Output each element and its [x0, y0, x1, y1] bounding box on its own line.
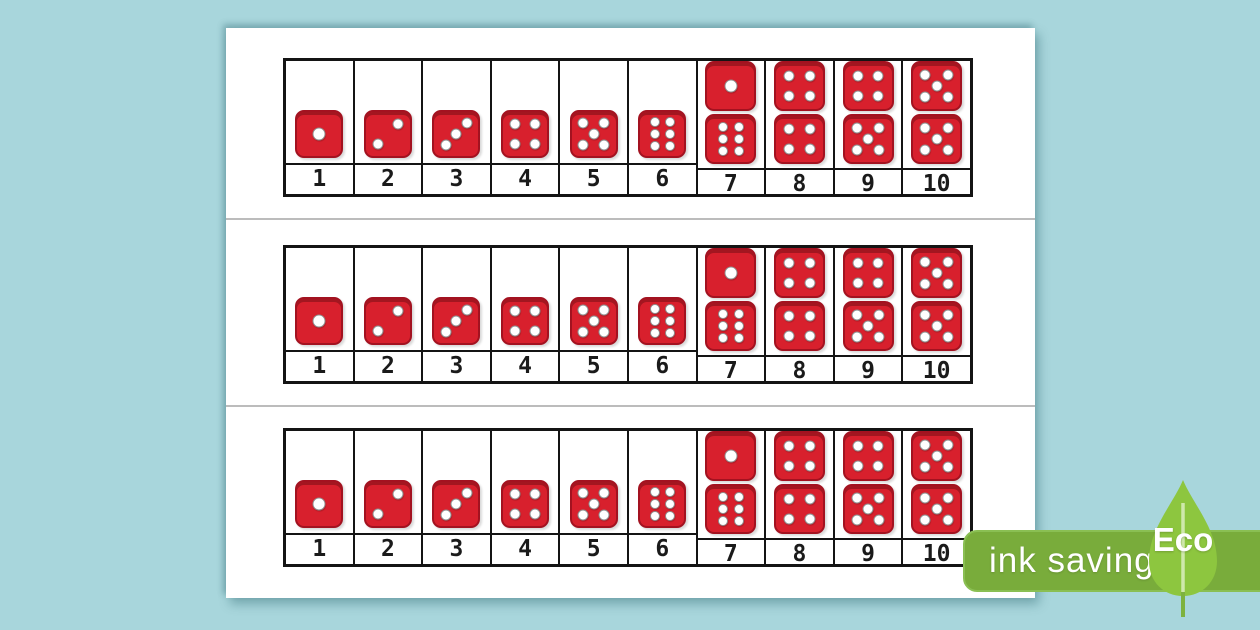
dice-area	[286, 248, 353, 350]
die-face-3	[432, 297, 480, 345]
die-pip	[724, 80, 737, 93]
die-pip	[804, 461, 815, 472]
die-face-5	[911, 248, 962, 298]
number-label: 7	[698, 168, 765, 199]
die-pip	[920, 332, 931, 343]
cut-line-divider	[226, 218, 1035, 220]
dice-area	[698, 61, 765, 168]
die-pip	[942, 332, 953, 343]
die-pip	[931, 451, 942, 462]
die-pip	[804, 493, 815, 504]
dice-area	[903, 248, 970, 355]
die-pip	[440, 510, 451, 521]
die-pip	[510, 138, 521, 149]
die-pip	[650, 328, 660, 338]
number-label: 7	[698, 538, 765, 569]
track-cell-4: 4	[492, 431, 561, 564]
die-pip	[529, 489, 540, 500]
screenshot-canvas: 12345678910 12345678910 12345678910 ink …	[0, 0, 1260, 630]
dice-area	[766, 431, 833, 538]
die-pip	[529, 119, 540, 130]
dice-area	[629, 61, 696, 163]
track-cell-10: 10	[903, 248, 970, 381]
die-face-1	[295, 297, 343, 345]
die-pip	[852, 70, 863, 81]
die-pip	[510, 508, 521, 519]
track-cell-1: 1	[286, 248, 355, 381]
die-pip	[599, 509, 610, 520]
die-pip	[650, 499, 660, 509]
die-pip	[451, 129, 462, 140]
die-pip	[852, 461, 863, 472]
die-pip	[874, 492, 885, 503]
number-label: 9	[835, 355, 902, 386]
die-face-1	[705, 431, 756, 481]
die-face-1	[295, 480, 343, 528]
die-pip	[392, 305, 403, 316]
die-pip	[942, 279, 953, 290]
die-pip	[851, 492, 862, 503]
number-label: 6	[629, 350, 696, 381]
die-pip	[851, 309, 862, 320]
number-label: 9	[835, 168, 902, 199]
dice-area	[492, 431, 559, 533]
die-pip	[784, 310, 795, 321]
die-pip	[874, 332, 885, 343]
die-pip	[920, 69, 931, 80]
number-label: 4	[492, 163, 559, 194]
die-face-4	[774, 301, 825, 351]
die-pip	[873, 440, 884, 451]
eco-leaf-icon: Eco	[1143, 477, 1223, 619]
track-cell-6: 6	[629, 431, 698, 564]
die-pip	[650, 304, 660, 314]
number-label: 3	[423, 163, 490, 194]
die-pip	[784, 514, 795, 525]
die-pip	[852, 257, 863, 268]
die-pip	[529, 138, 540, 149]
die-pip	[942, 69, 953, 80]
die-pip	[718, 122, 728, 132]
die-pip	[718, 333, 728, 343]
number-label: 6	[629, 533, 696, 564]
die-pip	[942, 439, 953, 450]
die-pip	[578, 305, 589, 316]
number-label: 10	[903, 168, 970, 199]
die-face-1	[295, 110, 343, 158]
dice-area	[835, 248, 902, 355]
die-pip	[804, 123, 815, 134]
die-pip	[313, 498, 326, 511]
number-label: 6	[629, 163, 696, 194]
track-cell-3: 3	[423, 61, 492, 194]
dice-number-track-strip-1: 12345678910	[283, 58, 973, 197]
dice-area	[423, 61, 490, 163]
die-pip	[734, 492, 744, 502]
die-pip	[718, 504, 728, 514]
die-pip	[588, 129, 599, 140]
die-pip	[863, 321, 874, 332]
number-label: 3	[423, 350, 490, 381]
dice-area	[355, 61, 422, 163]
track-cell-6: 6	[629, 248, 698, 381]
die-pip	[373, 326, 384, 337]
dice-area	[698, 431, 765, 538]
track-cell-10: 10	[903, 61, 970, 194]
die-pip	[874, 122, 885, 133]
die-face-4	[774, 114, 825, 164]
die-pip	[529, 508, 540, 519]
die-pip	[373, 139, 384, 150]
dice-area	[492, 61, 559, 163]
die-pip	[462, 488, 473, 499]
track-cell-3: 3	[423, 248, 492, 381]
number-label: 8	[766, 538, 833, 569]
dice-area	[835, 431, 902, 538]
die-face-6	[638, 110, 686, 158]
number-label: 5	[560, 350, 627, 381]
track-cell-3: 3	[423, 431, 492, 564]
die-pip	[931, 134, 942, 145]
die-face-2	[364, 297, 412, 345]
dice-area	[766, 248, 833, 355]
die-pip	[804, 514, 815, 525]
number-label: 9	[835, 538, 902, 569]
track-cell-7: 7	[698, 431, 767, 564]
die-face-5	[570, 480, 618, 528]
die-pip	[874, 309, 885, 320]
die-pip	[784, 493, 795, 504]
die-pip	[942, 145, 953, 156]
track-cell-9: 9	[835, 61, 904, 194]
number-label: 5	[560, 533, 627, 564]
worksheet-page: 12345678910 12345678910 12345678910	[226, 28, 1035, 598]
track-cell-10: 10	[903, 431, 970, 564]
die-face-2	[364, 110, 412, 158]
die-pip	[804, 144, 815, 155]
dice-area	[629, 248, 696, 350]
die-face-2	[364, 480, 412, 528]
die-pip	[804, 440, 815, 451]
die-pip	[784, 144, 795, 155]
die-pip	[578, 326, 589, 337]
die-pip	[724, 267, 737, 280]
number-label: 7	[698, 355, 765, 386]
track-cell-7: 7	[698, 61, 767, 194]
die-pip	[650, 129, 660, 139]
die-pip	[852, 440, 863, 451]
die-pip	[942, 122, 953, 133]
dice-area	[698, 248, 765, 355]
track-cell-8: 8	[766, 248, 835, 381]
track-cell-7: 7	[698, 248, 767, 381]
number-label: 5	[560, 163, 627, 194]
die-pip	[734, 309, 744, 319]
die-face-4	[774, 431, 825, 481]
die-pip	[784, 123, 795, 134]
die-face-4	[774, 248, 825, 298]
dice-area	[286, 61, 353, 163]
die-face-4	[774, 484, 825, 534]
die-pip	[510, 119, 521, 130]
number-label: 1	[286, 533, 353, 564]
die-face-4	[501, 480, 549, 528]
die-pip	[724, 450, 737, 463]
die-pip	[784, 257, 795, 268]
number-label: 2	[355, 350, 422, 381]
die-pip	[313, 315, 326, 328]
number-label: 3	[423, 533, 490, 564]
die-pip	[599, 488, 610, 499]
die-pip	[650, 316, 660, 326]
die-pip	[373, 509, 384, 520]
die-pip	[920, 279, 931, 290]
dice-area	[560, 248, 627, 350]
eco-label: Eco	[1143, 521, 1223, 559]
track-cell-5: 5	[560, 431, 629, 564]
die-pip	[599, 139, 610, 150]
die-face-5	[911, 301, 962, 351]
die-pip	[578, 488, 589, 499]
die-pip	[804, 310, 815, 321]
die-pip	[873, 461, 884, 472]
die-face-3	[432, 110, 480, 158]
die-pip	[784, 70, 795, 81]
die-face-4	[774, 61, 825, 111]
number-label: 10	[903, 355, 970, 386]
track-cell-5: 5	[560, 61, 629, 194]
dice-area	[355, 431, 422, 533]
dice-area	[903, 61, 970, 168]
die-pip	[873, 278, 884, 289]
dice-number-track-strip-2: 12345678910	[283, 245, 973, 384]
dice-area	[560, 61, 627, 163]
die-pip	[920, 515, 931, 526]
die-pip	[942, 515, 953, 526]
die-pip	[718, 516, 728, 526]
die-pip	[874, 145, 885, 156]
die-pip	[650, 487, 660, 497]
track-cell-6: 6	[629, 61, 698, 194]
die-pip	[718, 309, 728, 319]
die-pip	[931, 504, 942, 515]
die-face-1	[705, 61, 756, 111]
dice-area	[423, 248, 490, 350]
track-cell-5: 5	[560, 248, 629, 381]
die-pip	[510, 325, 521, 336]
die-pip	[873, 91, 884, 102]
die-pip	[873, 70, 884, 81]
die-face-5	[570, 297, 618, 345]
track-cell-9: 9	[835, 248, 904, 381]
die-face-4	[843, 61, 894, 111]
die-pip	[718, 146, 728, 156]
die-pip	[462, 305, 473, 316]
die-face-6	[705, 114, 756, 164]
dice-number-track-strip-3: 12345678910	[283, 428, 973, 567]
die-pip	[588, 499, 599, 510]
die-pip	[734, 333, 744, 343]
die-pip	[804, 91, 815, 102]
die-pip	[440, 140, 451, 151]
die-pip	[931, 268, 942, 279]
die-pip	[851, 122, 862, 133]
track-cell-2: 2	[355, 431, 424, 564]
die-pip	[510, 489, 521, 500]
die-pip	[718, 321, 728, 331]
die-pip	[804, 278, 815, 289]
die-pip	[665, 129, 675, 139]
dice-area	[355, 248, 422, 350]
die-face-5	[843, 114, 894, 164]
die-pip	[665, 499, 675, 509]
die-pip	[920, 439, 931, 450]
die-pip	[650, 141, 660, 151]
die-face-5	[911, 484, 962, 534]
die-face-5	[570, 110, 618, 158]
dice-area	[286, 431, 353, 533]
die-pip	[734, 134, 744, 144]
die-pip	[599, 305, 610, 316]
die-face-5	[843, 484, 894, 534]
dice-area	[423, 431, 490, 533]
number-label: 4	[492, 533, 559, 564]
die-pip	[920, 462, 931, 473]
ink-saving-label: ink saving	[965, 541, 1155, 581]
die-pip	[874, 515, 885, 526]
die-pip	[852, 91, 863, 102]
die-pip	[451, 499, 462, 510]
die-pip	[392, 118, 403, 129]
die-pip	[942, 462, 953, 473]
die-pip	[784, 461, 795, 472]
number-label: 2	[355, 533, 422, 564]
die-pip	[920, 256, 931, 267]
die-pip	[599, 326, 610, 337]
die-pip	[665, 304, 675, 314]
die-pip	[784, 278, 795, 289]
die-face-6	[638, 297, 686, 345]
die-pip	[392, 488, 403, 499]
die-pip	[718, 492, 728, 502]
die-pip	[578, 139, 589, 150]
dice-area	[835, 61, 902, 168]
die-pip	[578, 509, 589, 520]
die-face-4	[501, 110, 549, 158]
die-pip	[920, 145, 931, 156]
die-pip	[942, 492, 953, 503]
die-face-6	[705, 484, 756, 534]
die-pip	[529, 325, 540, 336]
die-pip	[920, 309, 931, 320]
die-face-6	[705, 301, 756, 351]
die-pip	[665, 141, 675, 151]
die-face-5	[911, 61, 962, 111]
die-pip	[931, 321, 942, 332]
die-pip	[784, 331, 795, 342]
die-face-1	[705, 248, 756, 298]
die-face-5	[843, 301, 894, 351]
die-pip	[650, 511, 660, 521]
track-cell-4: 4	[492, 61, 561, 194]
die-pip	[734, 122, 744, 132]
die-pip	[440, 327, 451, 338]
die-pip	[529, 306, 540, 317]
die-pip	[920, 122, 931, 133]
die-pip	[804, 257, 815, 268]
die-face-4	[501, 297, 549, 345]
die-pip	[851, 145, 862, 156]
die-pip	[920, 492, 931, 503]
track-cell-4: 4	[492, 248, 561, 381]
number-label: 4	[492, 350, 559, 381]
die-pip	[734, 516, 744, 526]
dice-area	[629, 431, 696, 533]
die-pip	[873, 257, 884, 268]
cut-line-divider	[226, 405, 1035, 407]
die-pip	[734, 321, 744, 331]
die-face-5	[911, 114, 962, 164]
die-pip	[665, 117, 675, 127]
die-pip	[863, 134, 874, 145]
die-pip	[851, 332, 862, 343]
number-label: 10	[903, 538, 970, 569]
track-cell-8: 8	[766, 431, 835, 564]
track-cell-1: 1	[286, 431, 355, 564]
die-pip	[851, 515, 862, 526]
die-pip	[510, 306, 521, 317]
die-pip	[734, 146, 744, 156]
track-cell-1: 1	[286, 61, 355, 194]
dice-area	[903, 431, 970, 538]
die-pip	[784, 91, 795, 102]
die-pip	[578, 118, 589, 129]
die-pip	[863, 504, 874, 515]
track-cell-2: 2	[355, 248, 424, 381]
die-pip	[650, 117, 660, 127]
die-face-6	[638, 480, 686, 528]
die-face-3	[432, 480, 480, 528]
dice-area	[766, 61, 833, 168]
die-pip	[920, 92, 931, 103]
dice-area	[560, 431, 627, 533]
track-cell-9: 9	[835, 431, 904, 564]
die-face-5	[911, 431, 962, 481]
number-label: 8	[766, 355, 833, 386]
die-pip	[804, 331, 815, 342]
die-pip	[931, 81, 942, 92]
die-face-4	[843, 431, 894, 481]
die-pip	[734, 504, 744, 514]
die-pip	[665, 511, 675, 521]
die-pip	[942, 256, 953, 267]
die-pip	[599, 118, 610, 129]
die-pip	[942, 92, 953, 103]
track-cell-8: 8	[766, 61, 835, 194]
die-pip	[665, 328, 675, 338]
die-pip	[451, 316, 462, 327]
number-label: 2	[355, 163, 422, 194]
die-face-4	[843, 248, 894, 298]
die-pip	[852, 278, 863, 289]
die-pip	[942, 309, 953, 320]
number-label: 1	[286, 163, 353, 194]
die-pip	[588, 316, 599, 327]
die-pip	[665, 316, 675, 326]
die-pip	[313, 128, 326, 141]
dice-area	[492, 248, 559, 350]
die-pip	[784, 440, 795, 451]
